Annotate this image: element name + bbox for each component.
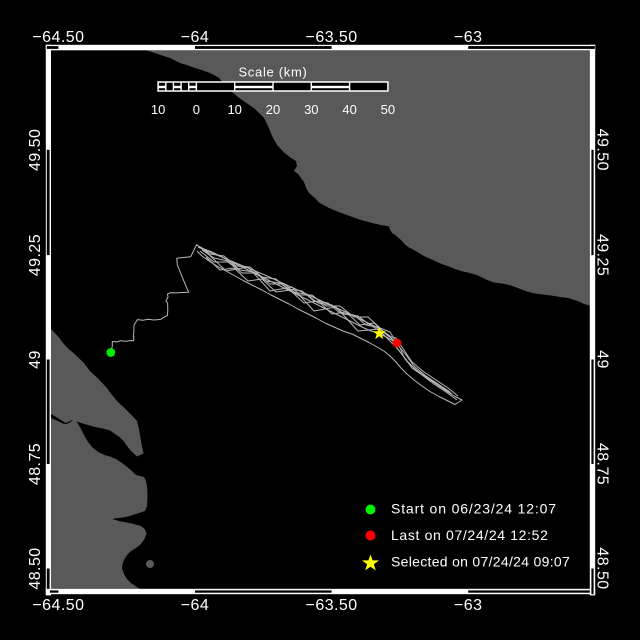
svg-text:Start on 06/23/24 12:07: Start on 06/23/24 12:07 [391,501,557,517]
svg-text:20: 20 [266,102,280,117]
svg-text:48.75: 48.75 [594,443,611,485]
svg-text:30: 30 [304,102,318,117]
svg-text:49: 49 [27,350,44,369]
svg-text:48.75: 48.75 [27,443,44,485]
svg-text:49.25: 49.25 [27,234,44,276]
svg-text:Selected on 07/24/24 09:07: Selected on 07/24/24 09:07 [391,554,570,570]
svg-text:−64: −64 [181,29,210,46]
svg-text:−63: −63 [454,597,483,614]
svg-text:Last on 07/24/24 12:52: Last on 07/24/24 12:52 [391,527,549,543]
svg-text:−63: −63 [454,29,483,46]
svg-text:10: 10 [227,102,241,117]
svg-text:48.50: 48.50 [27,547,44,589]
svg-text:48.50: 48.50 [594,547,611,589]
svg-text:0: 0 [193,102,200,117]
svg-text:−64.50: −64.50 [32,597,84,614]
svg-text:−64.50: −64.50 [32,29,84,46]
svg-text:−63.50: −63.50 [306,597,358,614]
svg-text:Scale (km): Scale (km) [238,65,307,80]
svg-text:49.25: 49.25 [594,234,611,276]
svg-text:49.50: 49.50 [27,129,44,171]
svg-text:49.50: 49.50 [594,129,611,171]
svg-text:49: 49 [594,350,611,369]
svg-text:50: 50 [381,102,395,117]
svg-text:10: 10 [151,102,165,117]
svg-text:−63.50: −63.50 [306,29,358,46]
svg-text:40: 40 [342,102,356,117]
svg-text:−64: −64 [181,597,210,614]
